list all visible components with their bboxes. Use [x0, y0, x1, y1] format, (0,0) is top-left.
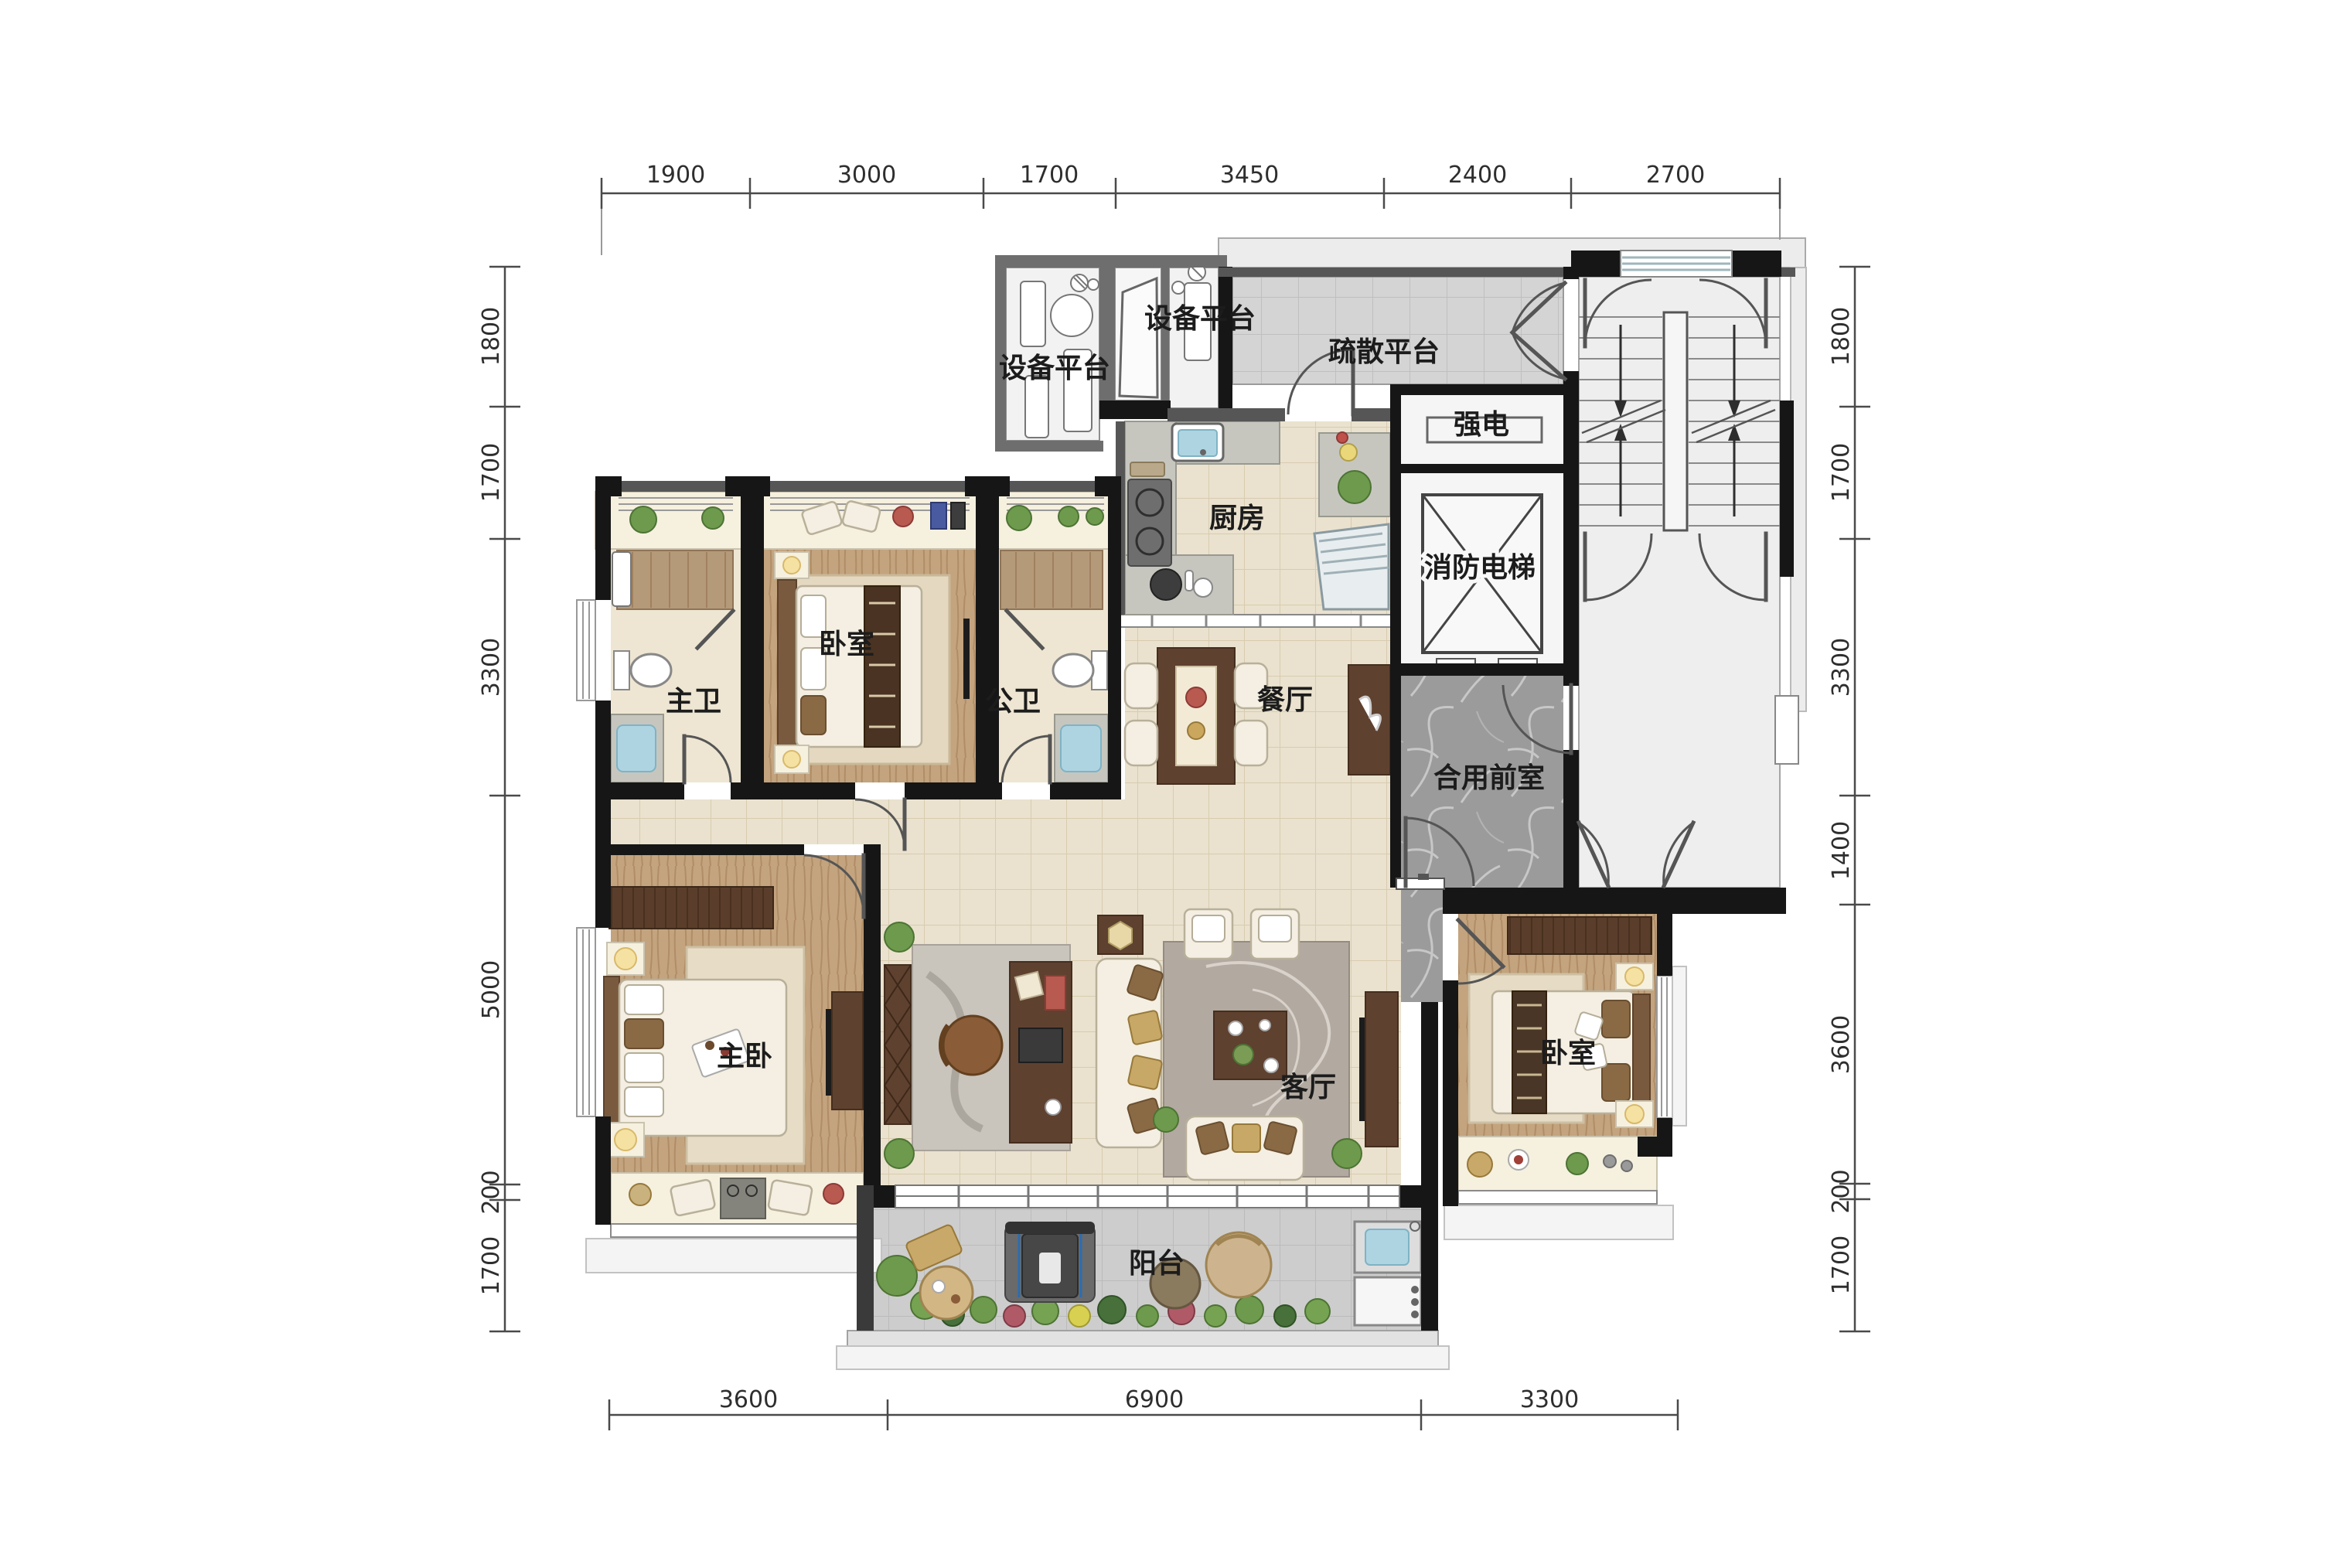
entry-vestibule-floor — [1401, 888, 1443, 1002]
tv-icon — [826, 1009, 831, 1096]
bottle-icon — [1185, 571, 1193, 591]
master-bay-window — [611, 1224, 864, 1237]
room-label-dining: 餐厅 — [1257, 684, 1313, 716]
room-label-fire-elevator: 消防电梯 — [1424, 552, 1536, 584]
plant — [1332, 1139, 1362, 1168]
flower-decor — [823, 1184, 844, 1204]
treadmill — [1005, 1222, 1095, 1302]
living-room-furniture — [885, 909, 1398, 1180]
dining-chair — [1235, 721, 1267, 765]
tv-cabinet-living — [1365, 992, 1398, 1147]
louver-panel — [1120, 278, 1157, 397]
pillow — [1602, 1000, 1630, 1038]
plant — [885, 1139, 914, 1168]
toilet-tank — [614, 651, 629, 690]
pillow — [625, 1019, 663, 1048]
dim-top-3: 1700 — [1020, 162, 1079, 189]
kitchen-plant — [1338, 471, 1371, 503]
room-label-shared-front-room: 合用前室 — [1433, 762, 1545, 794]
lamp-icon — [615, 1129, 636, 1150]
washer-icon — [612, 552, 631, 606]
pillow — [1195, 1121, 1229, 1155]
bay-console — [721, 1178, 765, 1219]
pillow — [625, 1087, 663, 1116]
pillow — [625, 985, 663, 1014]
dim-bottom-3: 3300 — [1520, 1386, 1579, 1413]
east-bedroom-side-window — [1657, 976, 1672, 1118]
tv-cabinet — [832, 992, 863, 1110]
balcony-rim — [847, 1331, 1438, 1346]
table-lamp-icon — [1109, 922, 1132, 949]
cutting-board — [1130, 462, 1164, 476]
art-frame — [931, 503, 946, 529]
dim-top-6: 2700 — [1646, 162, 1705, 189]
dim-left-3: 3300 — [478, 638, 505, 697]
pillow — [1127, 1055, 1162, 1089]
dim-right-4: 1400 — [1828, 821, 1855, 880]
room-label-public-bath: 公卫 — [985, 686, 1041, 718]
entry-sliding-door — [1396, 878, 1444, 889]
plant — [1154, 1107, 1178, 1132]
lamp-icon — [783, 557, 800, 574]
floor-plan-page: 设备平台 设备平台 疏散平台 强电 厨房 消防电梯 卧室 主卫 公卫 餐厅 合用… — [0, 0, 2352, 1568]
pillow — [1127, 1010, 1162, 1045]
pillow — [625, 1053, 663, 1082]
tv-icon — [963, 619, 970, 699]
lamp-icon — [1625, 1105, 1644, 1123]
dim-top-4: 3450 — [1220, 162, 1279, 189]
dim-left-5: 200 — [478, 1170, 505, 1214]
dining-chair — [1125, 721, 1157, 765]
room-label-bedroom-north: 卧室 — [819, 629, 874, 660]
table-runner — [1176, 666, 1216, 765]
rattan-chair — [1206, 1232, 1271, 1297]
room-label-strong-electric: 强电 — [1454, 409, 1509, 441]
floor-plan: 设备平台 设备平台 疏散平台 强电 厨房 消防电梯 卧室 主卫 公卫 餐厅 合用… — [0, 0, 2352, 1568]
bathtub-basin — [1061, 725, 1101, 772]
headboard — [778, 580, 796, 755]
room-label-evacuation-platform: 疏散平台 — [1328, 336, 1440, 368]
bathtub-basin — [617, 725, 656, 772]
balcony-sink-unit — [1355, 1222, 1421, 1325]
shower-area — [617, 551, 733, 609]
bed-runner — [864, 586, 900, 747]
bedroom-north-furniture — [775, 552, 970, 773]
east-bedroom-side-sill — [1672, 966, 1686, 1126]
pillow — [801, 696, 826, 735]
dim-right-7: 1700 — [1828, 1236, 1855, 1294]
dim-bottom-2: 6900 — [1125, 1386, 1184, 1413]
dim-right-2: 1700 — [1828, 443, 1855, 502]
laptop-icon — [1019, 1028, 1062, 1062]
dim-right-3: 3300 — [1828, 638, 1855, 697]
washer-icon — [1355, 1277, 1421, 1325]
east-bedroom-outer-step — [1444, 1205, 1673, 1239]
books — [1045, 976, 1065, 1010]
headboard — [1633, 994, 1650, 1110]
plant — [885, 922, 914, 952]
lamp-icon — [783, 751, 800, 768]
round-table — [920, 1266, 973, 1319]
plate-icon — [629, 1184, 651, 1205]
dim-top-5: 2400 — [1448, 162, 1507, 189]
basket-icon — [1467, 1152, 1492, 1177]
corridor-floor — [611, 799, 881, 844]
stair-center-rail — [1664, 312, 1687, 530]
plate-icon — [1194, 578, 1212, 597]
flower-centerpiece — [1186, 687, 1206, 707]
dim-left-1: 1800 — [478, 307, 505, 366]
dim-right-1: 1800 — [1828, 307, 1855, 366]
pillow — [768, 1180, 813, 1215]
tv-icon — [1359, 1017, 1365, 1121]
dim-top-1: 1900 — [646, 162, 705, 189]
flowers — [1233, 1045, 1253, 1065]
stove-icon — [1128, 479, 1171, 566]
papers — [1015, 972, 1043, 1000]
kitchen-sink-basin — [1178, 430, 1217, 456]
dining-chair — [1125, 663, 1157, 708]
dim-left-6: 1700 — [478, 1236, 505, 1295]
office-chair — [943, 1016, 1002, 1075]
toilet-icon — [631, 654, 671, 687]
master-bay-outer-step — [586, 1239, 881, 1273]
plant — [1566, 1153, 1588, 1174]
sideboard — [1348, 665, 1390, 775]
headboard — [604, 977, 619, 1125]
east-bedroom-bay-window — [1458, 1191, 1657, 1204]
bookshelf — [885, 965, 911, 1124]
dim-top-2: 3000 — [837, 162, 896, 189]
master-bath-side-window — [577, 600, 595, 700]
dim-bottom-1: 3600 — [719, 1386, 778, 1413]
toilet-icon — [1053, 654, 1093, 687]
master-bedroom-side-window — [577, 928, 595, 1116]
room-label-balcony: 阳台 — [1129, 1248, 1185, 1280]
dim-right-5: 3600 — [1828, 1015, 1855, 1074]
dim-right-6: 200 — [1828, 1169, 1855, 1213]
wardrobe — [609, 887, 773, 929]
room-label-master-bedroom: 主卧 — [717, 1041, 772, 1072]
pillow — [1602, 1064, 1630, 1101]
shaft-door — [1775, 696, 1798, 764]
room-label-equipment-platform-1: 设备平台 — [999, 353, 1110, 384]
dim-left-4: 5000 — [478, 960, 505, 1019]
balcony-outer-step — [837, 1346, 1449, 1369]
flower-decor — [893, 506, 913, 527]
room-label-master-bath: 主卫 — [666, 686, 721, 718]
art-frame — [951, 503, 965, 529]
pillow — [1232, 1124, 1260, 1152]
room-label-kitchen: 厨房 — [1209, 503, 1265, 534]
room-label-bedroom-east: 卧室 — [1540, 1038, 1596, 1069]
wardrobe — [1508, 917, 1652, 954]
kitchen-pass-window — [1116, 615, 1399, 627]
lamp-icon — [615, 948, 636, 970]
lamp-icon — [1625, 967, 1644, 986]
room-label-equipment-platform-2: 设备平台 — [1144, 303, 1256, 335]
dim-left-2: 1700 — [478, 443, 505, 502]
pillow — [1263, 1121, 1297, 1155]
room-label-living: 客厅 — [1280, 1072, 1336, 1103]
wok-icon — [1150, 569, 1181, 600]
